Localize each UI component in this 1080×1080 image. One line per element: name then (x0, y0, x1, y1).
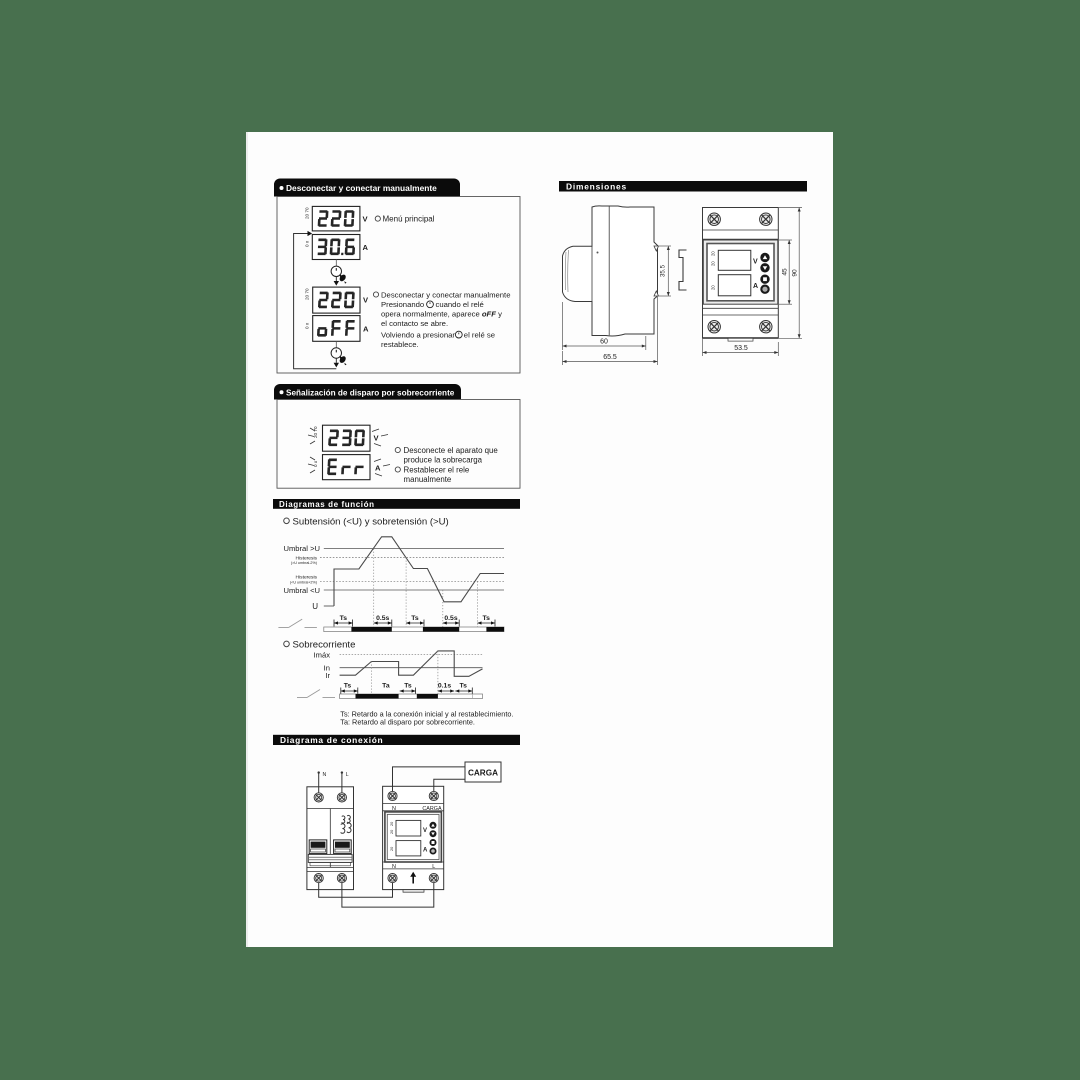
svg-text:60: 60 (600, 339, 608, 346)
svg-text:L: L (346, 772, 349, 778)
svg-text:V: V (753, 259, 758, 266)
svg-text:45: 45 (782, 268, 789, 276)
svg-text:65.5: 65.5 (603, 354, 617, 361)
svg-text:Imáx: Imáx (314, 651, 331, 660)
svg-text:0 x: 0 x (313, 460, 318, 467)
svg-text:0 x: 0 x (305, 322, 310, 329)
svg-text:0 x: 0 x (305, 240, 310, 247)
svg-text:A: A (753, 283, 758, 290)
svg-text:Umbral >U: Umbral >U (283, 544, 320, 553)
svg-text:Diagramas de función: Diagramas de función (279, 500, 375, 509)
svg-text:A: A (423, 848, 428, 854)
svg-text:0-OFF: 0-OFF (337, 844, 348, 848)
svg-text:Ts: Ts (411, 615, 419, 622)
svg-text:0.1s: 0.1s (438, 683, 451, 690)
svg-text:Restablecer el rele: Restablecer el rele (404, 465, 470, 474)
svg-text:A: A (363, 325, 369, 334)
svg-text:Umbral <U: Umbral <U (283, 586, 320, 595)
svg-text:20: 20 (390, 830, 394, 834)
svg-text:N: N (392, 806, 396, 812)
svg-text:Señalización de disparo por so: Señalización de disparo por sobrecorrien… (286, 388, 455, 397)
svg-text:(<U umbral+2%): (<U umbral+2%) (290, 581, 317, 585)
svg-text:0.5s: 0.5s (376, 615, 389, 622)
svg-text:0.5s: 0.5s (444, 615, 457, 622)
svg-text:(>U umbral-2%): (>U umbral-2%) (291, 561, 317, 565)
svg-text:Menú principal: Menú principal (383, 215, 435, 224)
svg-text:A: A (375, 464, 381, 473)
svg-text:20: 20 (711, 285, 716, 290)
svg-text:restablece.: restablece. (381, 340, 419, 349)
svg-text:Volviendo a presionar: Volviendo a presionar (381, 330, 455, 339)
svg-text:53.5: 53.5 (734, 345, 748, 352)
svg-text:el relé se: el relé se (464, 330, 495, 339)
svg-text:opera normalmente, aparece oFF: opera normalmente, aparece oFF y (381, 310, 502, 319)
svg-text:Sobrecorriente: Sobrecorriente (293, 639, 356, 650)
svg-text:20 70: 20 70 (305, 207, 310, 219)
svg-text:20: 20 (390, 822, 394, 826)
svg-text:20: 20 (711, 251, 716, 256)
svg-text:produce la sobrecarga: produce la sobrecarga (404, 456, 483, 465)
svg-text:Ts: Ts (459, 683, 467, 690)
svg-text:N: N (392, 864, 396, 870)
svg-text:Ts: Ts (340, 615, 348, 622)
svg-text:Diagrama de conexión: Diagrama de conexión (280, 735, 383, 745)
svg-text:Desconectar y conectar manualm: Desconectar y conectar manualmente (286, 183, 437, 193)
svg-text:Ts: Ts (482, 615, 490, 622)
svg-text:V: V (423, 828, 427, 834)
svg-text:A: A (363, 243, 369, 252)
svg-text:Presionando: Presionando (381, 300, 424, 309)
svg-text:0-OFF: 0-OFF (313, 844, 324, 848)
svg-text:CARGA: CARGA (422, 806, 442, 812)
svg-text:U: U (312, 602, 318, 611)
svg-text:20: 20 (711, 261, 716, 266)
svg-text:Desconecte el aparato que: Desconecte el aparato que (404, 446, 499, 455)
svg-text:35.5: 35.5 (660, 264, 667, 277)
svg-text:Ta: Retardo al disparo por sob: Ta: Retardo al disparo por sobrecorrient… (340, 717, 475, 726)
svg-text:L: L (432, 864, 435, 870)
svg-text:Desconectar y conectar manualm: Desconectar y conectar manualmente (381, 291, 510, 300)
svg-text:cuando el relé: cuando el relé (436, 300, 484, 309)
svg-text:N: N (323, 772, 327, 778)
svg-text:Ts: Ts (404, 683, 412, 690)
svg-text:CARGA: CARGA (468, 768, 498, 777)
svg-text:Dimensiones: Dimensiones (566, 181, 627, 191)
svg-text:20: 20 (390, 847, 394, 851)
svg-text:Ta: Ta (382, 683, 390, 690)
svg-text:90: 90 (792, 269, 799, 277)
svg-text:Subtensión (<U) y sobretensión: Subtensión (<U) y sobretensión (>U) (293, 516, 449, 527)
svg-text:20 70: 20 70 (305, 288, 310, 300)
svg-text:manualmente: manualmente (404, 475, 452, 484)
svg-text:el contacto se abre.: el contacto se abre. (381, 319, 448, 328)
svg-text:Ir: Ir (325, 671, 330, 680)
svg-text:Ts: Ts (344, 683, 352, 690)
